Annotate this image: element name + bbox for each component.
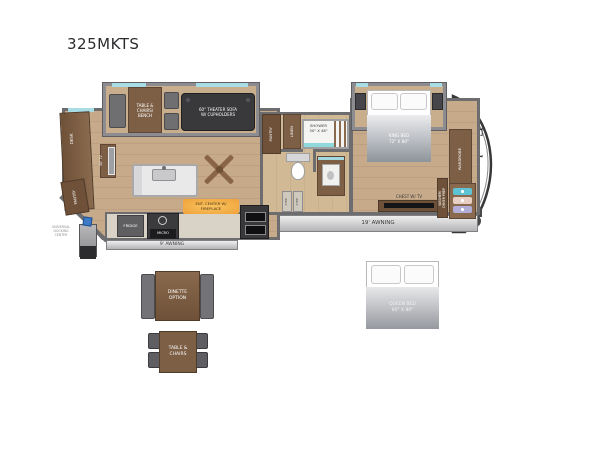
vanity-accent: [318, 157, 344, 160]
microwave: MICRO: [150, 229, 176, 238]
entertainment-center-cabinet: [240, 205, 269, 239]
wardrobe: WARDROBE: [449, 129, 472, 189]
step-up: STEP: [293, 191, 303, 212]
drawer-blush: [453, 197, 472, 204]
tv-slot: [245, 212, 266, 222]
shower-seat-slats: [334, 121, 347, 147]
cupholder-icon: [186, 98, 190, 102]
step-label: STEP: [285, 198, 289, 205]
dinette-bench: [109, 94, 126, 128]
toilet-icon: [291, 162, 305, 180]
dinette-option-bench: [141, 274, 155, 319]
king-bed-label: KING BED 72" X 80": [389, 133, 409, 144]
tv-label: 50" TV: [100, 147, 104, 175]
pillow: [371, 93, 398, 110]
faucet-icon: [162, 166, 166, 170]
toilet-tank: [286, 153, 310, 162]
ceiling-fan-icon: [216, 166, 223, 173]
power-hookup-icon: [82, 216, 92, 226]
bath-partition-wall: [313, 152, 316, 172]
table-chairs-bench: TABLE & CHAIRS/ BENCH: [128, 87, 162, 133]
microwave-label: MICRO: [157, 231, 169, 235]
fridge-label: FRIDGE: [123, 224, 137, 229]
theater-sofa: 60" THEATER SOFA W/ CUPHOLDERS: [181, 93, 255, 131]
cupholder-icon: [246, 98, 250, 102]
desk-label: DESK: [69, 119, 76, 159]
awning-9ft: 9' AWNING: [106, 240, 238, 250]
theater-sofa-label: 60" THEATER SOFA W/ CUPHOLDERS: [199, 107, 237, 117]
washer-dryer-label: WASHER/ DRYER PREP: [439, 188, 447, 208]
dining-chair: [164, 92, 179, 109]
queen-bed-blanket: QUEEN BED 60" X 80": [366, 287, 439, 329]
drawer-lavender: [453, 206, 472, 213]
sink-basin-icon: [327, 171, 334, 180]
dinette-option-bench: [200, 274, 214, 319]
table-chairs-option: TABLE & CHAIRS: [159, 331, 197, 373]
bath-pantry-label: PANTRY: [269, 127, 274, 142]
floorplan-model-title: 325MKTS: [67, 35, 139, 54]
window: [430, 83, 442, 87]
refrigerator: FRIDGE: [117, 215, 144, 237]
window: [356, 83, 368, 87]
washer-dryer-prep: WASHER/ DRYER PREP: [437, 178, 448, 218]
floorplan-page: 325MKTS Eagle 19' AWNING 9' AWNING TABLE…: [0, 0, 600, 450]
bath-pantry-closet: PANTRY: [262, 114, 281, 154]
pillow: [404, 265, 434, 284]
dinette-option-label: DINETTE OPTION: [168, 290, 187, 301]
shower-label: SHOWER 30" X 48": [303, 124, 334, 133]
step-label: STEP: [296, 198, 300, 205]
drawer-teal: [453, 188, 472, 195]
awning-9ft-label: 9' AWNING: [160, 242, 184, 248]
wardrobe-label: WARDROBE: [458, 148, 463, 170]
rear-pantry: PANTRY: [60, 178, 89, 215]
tv-icon: [108, 147, 115, 175]
kitchen-sink: [152, 169, 176, 181]
bath-partition-wall: [313, 149, 352, 152]
step-up: STEP: [282, 191, 292, 212]
linen-label: LINEN: [290, 126, 295, 137]
fireplace-label: ENT. CENTER W/ FIREPLACE: [195, 202, 226, 211]
nightstand: [432, 93, 443, 110]
awning-19ft: 19' AWNING: [278, 215, 478, 232]
queen-bed-label: QUEEN BED 60" X 80": [389, 302, 416, 313]
fireplace-slot: [245, 225, 266, 235]
window: [196, 83, 248, 87]
linen-closet: LINEN: [283, 114, 301, 149]
table-chairs-bench-label: TABLE & CHAIRS/ BENCH: [137, 103, 154, 118]
bedroom-tv-icon: [384, 203, 434, 208]
nightstand: [355, 93, 366, 110]
bath-partition-wall: [281, 149, 303, 152]
fireplace-callout: ENT. CENTER W/ FIREPLACE: [183, 199, 239, 214]
docking-center-label: UNIVERSAL DOCKING CENTER: [44, 225, 78, 237]
chest-tv-label: CHEST W/ TV: [372, 194, 446, 199]
island-counter-edge: [134, 166, 142, 195]
awning-19ft-label: 19' AWNING: [361, 220, 394, 227]
king-bed-blanket: KING BED 72" X 80": [367, 115, 431, 162]
rear-pantry-label: PANTRY: [72, 189, 79, 204]
dinette-option: DINETTE OPTION: [155, 271, 200, 321]
table-chairs-option-label: TABLE & CHAIRS: [169, 346, 188, 357]
entry-mat: [80, 246, 96, 259]
dining-chair: [164, 113, 179, 130]
front-step-cabinet: [449, 183, 476, 219]
burner-icon: [158, 216, 167, 225]
pillow: [371, 265, 401, 284]
pillow: [400, 93, 427, 110]
